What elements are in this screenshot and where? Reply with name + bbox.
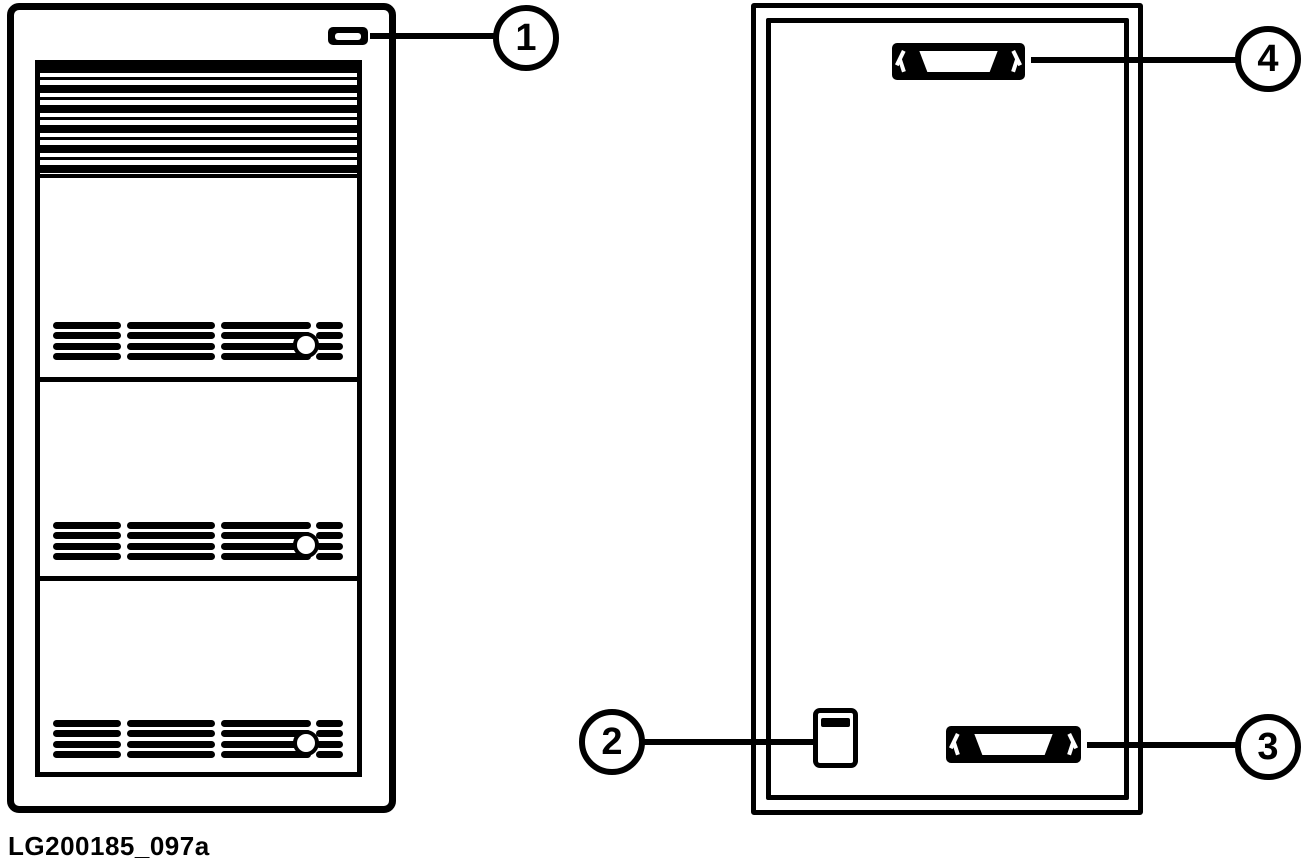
callout-1-number: 1 bbox=[515, 19, 536, 57]
callout-4: 4 bbox=[1235, 26, 1301, 92]
thumbscrew-icon bbox=[897, 50, 911, 74]
callout-1: 1 bbox=[493, 5, 559, 71]
callout-2: 2 bbox=[579, 709, 645, 775]
thumbscrew-icon bbox=[1006, 50, 1020, 74]
leader-line-2 bbox=[644, 739, 815, 745]
bay-divider bbox=[40, 576, 357, 581]
switch-slider bbox=[821, 718, 850, 727]
power-button bbox=[328, 27, 368, 45]
side-panel-inner bbox=[766, 18, 1129, 800]
callout-3: 3 bbox=[1235, 714, 1301, 780]
leader-line-3 bbox=[1087, 742, 1236, 748]
leader-line-1 bbox=[370, 33, 494, 39]
drive-bay-grille bbox=[53, 322, 343, 360]
callout-4-number: 4 bbox=[1257, 40, 1278, 78]
thumbscrew-icon bbox=[1062, 733, 1076, 757]
grille-hole bbox=[293, 730, 319, 756]
top-connector bbox=[892, 43, 1025, 80]
drive-bay-grille bbox=[53, 522, 343, 560]
front-vent-stripes bbox=[40, 65, 357, 178]
bay-divider bbox=[40, 377, 357, 382]
grille-hole bbox=[293, 532, 319, 558]
power-button-slot bbox=[335, 33, 361, 40]
leader-line-4 bbox=[1031, 57, 1236, 63]
dsub-opening bbox=[914, 51, 1003, 72]
slide-switch bbox=[813, 708, 858, 768]
dsub-opening bbox=[969, 734, 1058, 755]
figure-caption: LG200185_097a bbox=[8, 831, 210, 862]
callout-2-number: 2 bbox=[601, 723, 622, 761]
callout-3-number: 3 bbox=[1257, 728, 1278, 766]
figure-canvas: 1 2 3 4 LG200185_097a bbox=[0, 0, 1307, 862]
grille-hole bbox=[293, 332, 319, 358]
bottom-connector bbox=[946, 726, 1081, 763]
thumbscrew-icon bbox=[951, 733, 965, 757]
drive-bay-grille bbox=[53, 720, 343, 758]
